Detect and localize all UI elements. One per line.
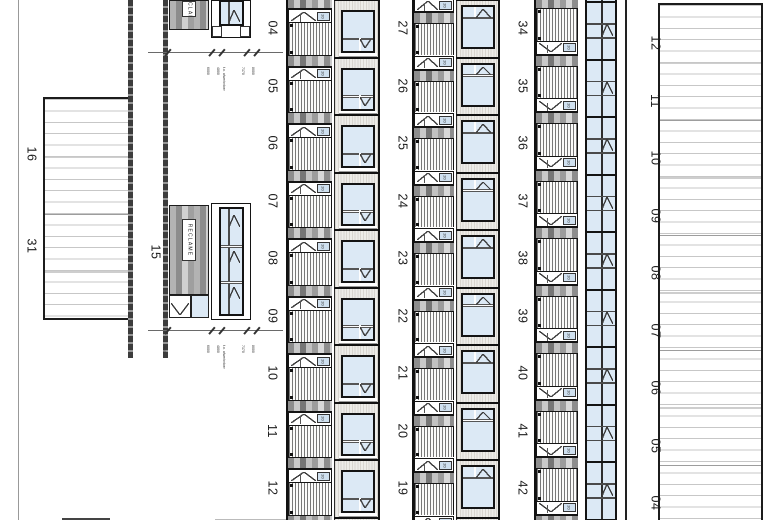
slat-corner-mark [538,382,541,385]
railing-brace-icon [539,331,562,340]
slat-corner-mark [538,470,541,473]
railing-tick [300,416,301,424]
slat-corner-mark [538,183,541,186]
window-vent-icon [476,297,491,306]
balcony-slats [288,253,332,285]
gallery-vent-icon [602,139,613,151]
unit-boundary-line [334,57,380,59]
module-label-15: 15 [145,242,165,262]
dimension-label: 7925 [166,333,170,359]
balcony-slats [414,427,454,458]
glazing-mullion-h [221,281,242,284]
slat-corner-mark [416,198,419,201]
gallery-floor-line [587,404,615,406]
unit-label: 06 [262,133,282,153]
balcony-railing: 20 [536,271,578,285]
balcony-slats [414,197,454,228]
railing-brace-icon [417,288,438,297]
window-vent-icon [476,354,491,363]
gallery-mullion-h [587,325,615,327]
slat-corner-mark [290,369,293,372]
unit-badge: 20 [563,273,576,282]
slat-corner-mark [538,497,541,500]
unit-label: 40 [512,363,532,383]
railing-brace-icon [417,116,438,125]
railing-tick [547,333,548,341]
unit-badge: 20 [317,472,330,481]
unit-boundary-line [456,287,500,289]
slat-corner-mark [290,312,293,315]
slat-corner-mark [290,484,293,487]
slat-corner-mark [290,223,293,226]
railing-brace-icon [291,242,316,251]
slat-corner-mark [290,281,293,284]
roof-panel-left [43,97,132,320]
gallery-glazing [585,0,617,520]
slat-corner-mark [416,166,419,169]
unit-boundary-line [456,517,500,519]
railing-brace-icon [539,216,562,225]
unit-boundary-line [334,0,380,1]
railing-brace-icon [291,414,316,423]
balcony-separator [536,285,578,297]
window-vent-icon [476,239,491,248]
unit-boundary-line [456,402,500,404]
roof-label-31: 31 [21,236,41,256]
unit-boundary-line [456,114,500,116]
railing-tick [424,463,425,471]
unit-badge: 20 [439,288,452,297]
unit-boundary-line [334,344,380,346]
slat-corner-mark [538,37,541,40]
unit-window [341,355,375,398]
unit-label: 38 [512,248,532,268]
balcony-slats [414,139,454,170]
balcony-separator [288,400,332,412]
slat-corner-mark [290,82,293,85]
unit-label: 05 [645,436,665,456]
unit-badge: 20 [317,242,330,251]
railing-tick [424,118,425,126]
dimension-label: 7925 [166,55,170,81]
unit-badge: 20 [563,158,576,167]
railing-tick [300,244,301,252]
balcony-railing: 20 [288,9,332,23]
window-vent-icon [360,97,372,106]
railing-tick [547,390,548,398]
unit-window [461,350,495,394]
unit-label: 04 [645,493,665,513]
railing-tick [424,175,425,183]
unit-window [341,470,375,513]
slat-corner-mark [290,396,293,399]
unit-label: 07 [645,321,665,341]
unit-badge: 20 [439,346,452,355]
slat-corner-mark [290,166,293,169]
slat-corner-mark [416,428,419,431]
slat-corner-mark [538,298,541,301]
unit-window [461,120,495,164]
unit-label: 27 [392,18,412,38]
unit-label: 39 [512,306,532,326]
slat-corner-mark [416,313,419,316]
unit-badge: 20 [317,184,330,193]
unit-label: 11 [645,91,665,111]
balcony-railing: 20 [536,501,578,515]
window-vent-icon [476,469,491,478]
slat-corner-mark [538,439,541,442]
railing-tick [547,275,548,283]
unit-badge: 20 [563,331,576,340]
window-vent-icon [360,384,372,393]
unit-boundary-line [334,459,380,461]
balcony-railing: 20 [414,171,454,185]
railing-tick [300,129,301,137]
slat-corner-mark [416,338,419,341]
balcony-slats [288,311,332,343]
window-vent-icon [360,327,372,336]
balcony-separator [288,0,332,9]
gallery-mullion-h [587,497,615,499]
dimension-label: 7170 [245,55,249,81]
balcony-railing: 20 [536,41,578,55]
glazing-vent-icon [229,287,240,299]
gallery-vent-icon [602,427,613,439]
unit-label: 37 [512,191,532,211]
slat-corner-mark [290,108,293,111]
balcony-slats [536,239,578,271]
balcony-separator [288,285,332,297]
unit-label: 08 [645,263,665,283]
unit-label: 07 [262,191,282,211]
balcony-separator [414,357,454,369]
balcony-separator [288,457,332,469]
unit-badge: 20 [563,216,576,225]
gallery-floor-line [587,231,615,233]
balcony-railing: 20 [536,213,578,227]
balcony-slats [536,412,578,444]
railing-tick [424,348,425,356]
unit-label: 10 [262,363,282,383]
dimension-label: 7170 [245,333,249,359]
balcony-slats [288,483,332,515]
railing-brace-icon [417,231,438,240]
unit-boundary-line [334,517,380,519]
slat-corner-mark [416,25,419,28]
railing-tick [300,301,301,309]
gallery-floor-line [587,1,615,3]
unit-boundary-line [456,459,500,461]
unit-badge: 20 [439,231,452,240]
railing-brace-icon [291,472,316,481]
railing-tick [547,505,548,513]
window-vent-icon [360,499,372,508]
gallery-mullion-h [587,152,615,154]
unit-label: 10 [645,148,665,168]
railing-brace-icon [539,503,562,512]
balcony-slats [536,182,578,214]
balcony-railing: 20 [536,328,578,342]
railing-brace-icon [291,184,316,193]
balcony-separator [414,12,454,24]
balcony-railing: 20 [288,469,332,483]
slat-corner-mark [416,370,419,373]
slat-corner-mark [416,83,419,86]
balcony-slats [288,138,332,170]
glazing-vent-icon [229,251,240,263]
balcony-railing: 20 [536,156,578,170]
entrance-bay [169,295,191,318]
unit-label: 19 [392,478,412,498]
balcony-railing: 20 [288,297,332,311]
railing-tick [300,14,301,22]
dimension-label: 6000 [210,333,214,359]
balcony-slats [536,469,578,501]
slat-corner-mark [538,152,541,155]
slat-corner-mark [538,267,541,270]
gallery-floor-line [587,289,615,291]
dimension-note: t.o. afwerkvloer [226,333,230,363]
roof-panel-right [658,3,763,520]
balcony-separator [288,342,332,354]
unit-label: 36 [512,133,532,153]
railing-tick [424,233,425,241]
slat-corner-mark [416,396,419,399]
gallery-mullion-h [587,37,615,39]
entrance-panel [191,295,209,318]
balcony-slats [536,9,578,41]
balcony-slats [414,254,454,285]
unit-label: 12 [262,478,282,498]
unit-window [341,240,375,283]
gallery-floor-line [587,346,615,348]
gallery-floor-line [587,59,615,61]
unit-badge: 20 [563,388,576,397]
railing-brace-icon [539,158,562,167]
glazing-vent-icon [229,10,240,22]
slat-corner-mark [538,68,541,71]
balcony-slats [536,354,578,386]
slat-corner-mark [290,139,293,142]
unit-label: 11 [262,421,282,441]
balcony-separator [536,342,578,354]
unit-label: 42 [512,478,532,498]
balcony-slats [414,82,454,113]
slat-corner-mark [416,51,419,54]
railing-brace-icon [291,12,316,21]
balcony-railing: 20 [414,458,454,472]
unit-label: 08 [262,248,282,268]
balcony-separator [414,185,454,197]
unit-badge: 20 [317,414,330,423]
railing-brace-icon [539,446,562,455]
unit-window [341,413,375,456]
railing-brace-icon [291,357,316,366]
balcony-separator [414,127,454,139]
unit-boundary-line [456,344,500,346]
unit-window [341,10,375,53]
stair-glazing [219,0,244,26]
slat-corner-mark [538,324,541,327]
slat-corner-mark [290,254,293,257]
unit-label: 09 [645,206,665,226]
unit-badge: 20 [439,1,452,10]
unit-badge: 20 [563,446,576,455]
balcony-slats [288,426,332,458]
entrance-brace-icon [171,303,189,315]
slat-corner-mark [290,427,293,430]
unit-label: 04 [262,18,282,38]
balcony-separator [536,112,578,124]
gallery-floor-line [587,174,615,176]
balcony-railing: 20 [414,286,454,300]
gallery-mullion-h [587,382,615,384]
reclame-cladding: RECLAME [169,205,209,295]
unit-window [461,5,495,49]
gallery-vent-icon [602,369,613,381]
slat-corner-mark [416,485,419,488]
unit-window [461,63,495,107]
unit-boundary-line [456,172,500,174]
balcony-separator [288,55,332,67]
unit-badge: 20 [317,357,330,366]
railing-tick [547,103,548,111]
unit-window [461,178,495,222]
unit-label: 34 [512,18,532,38]
railing-tick [424,405,425,413]
unit-badge: 20 [563,503,576,512]
window-vent-icon [476,182,491,191]
balcony-railing: 20 [288,182,332,196]
railing-brace-icon [539,273,562,282]
slat-corner-mark [416,140,419,143]
balcony-slats [414,484,454,515]
slat-corner-mark [290,511,293,514]
slat-corner-mark [416,453,419,456]
stair-glazing [219,207,244,316]
unit-badge: 20 [439,403,452,412]
railing-brace-icon [417,346,438,355]
balcony-separator [414,472,454,484]
slat-corner-mark [290,453,293,456]
balcony-slats [288,81,332,113]
balcony-slats [288,196,332,228]
balcony-separator [414,415,454,427]
unit-badge: 20 [439,116,452,125]
dimension-label: 8000 [255,55,259,81]
balcony-slats [414,312,454,343]
gallery-floor-line [587,116,615,118]
unit-label: 23 [392,248,412,268]
gallery-mullion-h [587,267,615,269]
balcony-slats [288,23,332,55]
glazing-mullion-h [221,245,242,248]
unit-boundary-line [456,229,500,231]
railing-brace-icon [417,461,438,470]
cutoff-mark-a [62,518,110,520]
balcony-railing: 20 [536,98,578,112]
unit-window [461,293,495,337]
window-vent-icon [476,67,491,76]
unit-window [461,408,495,452]
railing-tick [300,186,301,194]
railing-tick [300,474,301,482]
unit-badge: 20 [563,43,576,52]
balcony-separator [536,170,578,182]
ground-line-0 [128,0,133,358]
gallery-mullion-h [587,210,615,212]
balcony-separator [536,457,578,469]
unit-badge: 20 [563,101,576,110]
unit-badge: 20 [439,173,452,182]
slat-corner-mark [416,281,419,284]
unit-label: 24 [392,191,412,211]
railing-tick [300,71,301,79]
balcony-railing: 20 [288,412,332,426]
dimension-label: 8000 [255,333,259,359]
dimension-label: 6000 [210,55,214,81]
unit-window [341,298,375,341]
balcony-separator [536,515,578,520]
gallery-vent-icon [602,24,613,36]
unit-boundary-line [334,114,380,116]
slat-corner-mark [416,255,419,258]
slat-corner-mark [538,10,541,13]
railing-brace-icon [417,58,438,67]
unit-boundary-line [456,0,500,1]
railing-brace-icon [417,173,438,182]
window-vent-icon [360,269,372,278]
reclame-sign: RECLAME [182,219,196,261]
gallery-vent-icon [602,82,613,94]
slat-corner-mark [416,223,419,226]
balcony-railing: 20 [288,239,332,253]
balcony-railing: 20 [288,354,332,368]
balcony-railing: 20 [414,113,454,127]
railing-brace-icon [539,43,562,52]
window-vent-icon [476,124,491,133]
slat-corner-mark [538,240,541,243]
unit-window [461,465,495,509]
railing-tick [424,60,425,68]
slat-corner-mark [538,355,541,358]
balcony-railing: 20 [414,228,454,242]
balcony-separator [536,400,578,412]
window-vent-icon [476,9,491,18]
unit-label: 09 [262,306,282,326]
surround-post [240,26,250,37]
window-vent-icon [360,154,372,163]
unit-label: 21 [392,363,412,383]
slat-corner-mark [538,94,541,97]
unit-boundary-line [334,229,380,231]
unit-badge: 20 [317,12,330,21]
roof-label-16: 16 [21,144,41,164]
balcony-separator [536,0,578,9]
railing-brace-icon [539,388,562,397]
unit-label: 26 [392,76,412,96]
balcony-railing: 20 [288,67,332,81]
facade-edge-line [625,0,627,520]
balcony-railing: 20 [288,124,332,138]
slat-corner-mark [290,338,293,341]
unit-boundary-line [334,287,380,289]
unit-boundary-line [456,57,500,59]
unit-label: 12 [645,33,665,53]
railing-tick [424,3,425,11]
glazing-vent-icon [229,215,240,227]
railing-brace-icon [417,403,438,412]
